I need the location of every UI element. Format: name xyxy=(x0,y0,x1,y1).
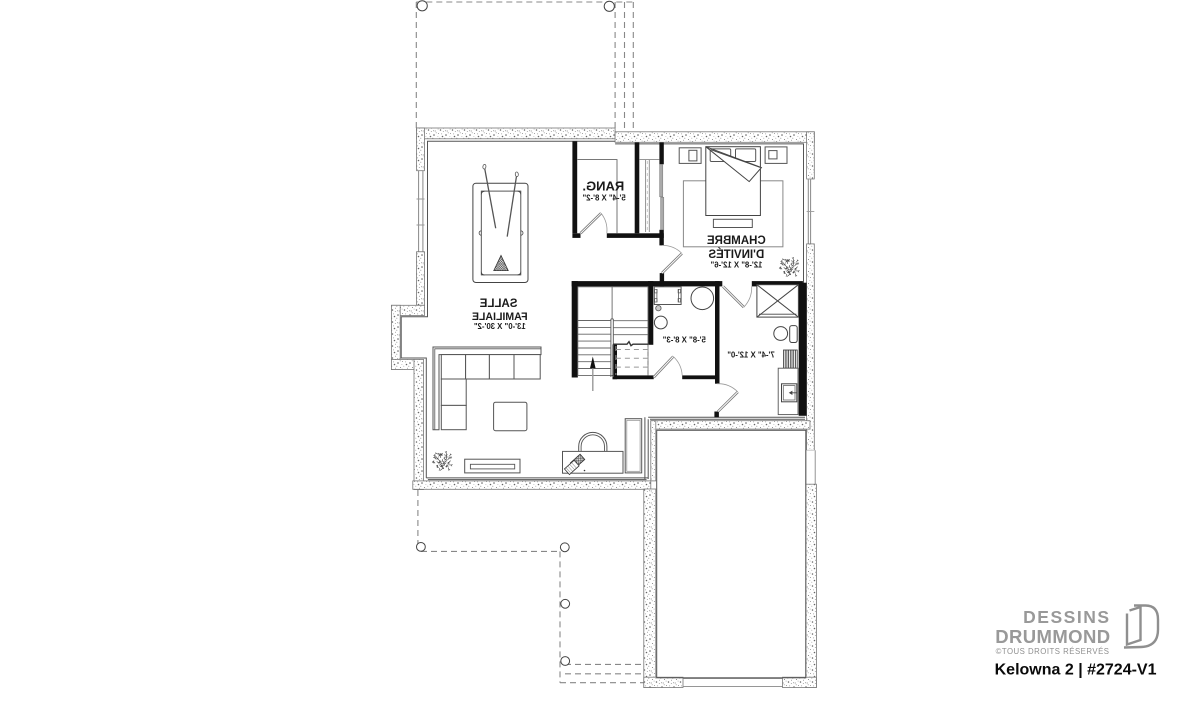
svg-text:SALLE: SALLE xyxy=(479,298,517,310)
svg-text:RANG.: RANG. xyxy=(582,179,624,194)
svg-text:7'-4" X 12'-0": 7'-4" X 12'-0" xyxy=(727,350,775,359)
svg-text:DESSINS: DESSINS xyxy=(1023,607,1110,627)
svg-text:Kelowna 2 | #2724-V1: Kelowna 2 | #2724-V1 xyxy=(995,661,1157,678)
svg-text:CHAMBRE: CHAMBRE xyxy=(707,235,766,247)
svg-text:5'-8" X 8'-3": 5'-8" X 8'-3" xyxy=(662,335,705,344)
svg-text:DRUMMOND: DRUMMOND xyxy=(995,626,1110,647)
svg-text:D'INVITÉS: D'INVITÉS xyxy=(708,248,764,261)
svg-text:12'-8" X 12'-6": 12'-8" X 12'-6" xyxy=(710,261,762,270)
svg-text:13'-0" X 30'-2": 13'-0" X 30'-2" xyxy=(474,322,526,331)
svg-text:5'-4" X 8'-2": 5'-4" X 8'-2" xyxy=(582,193,625,202)
svg-text:©TOUS DROITS RÉSERVÉS: ©TOUS DROITS RÉSERVÉS xyxy=(996,647,1110,656)
